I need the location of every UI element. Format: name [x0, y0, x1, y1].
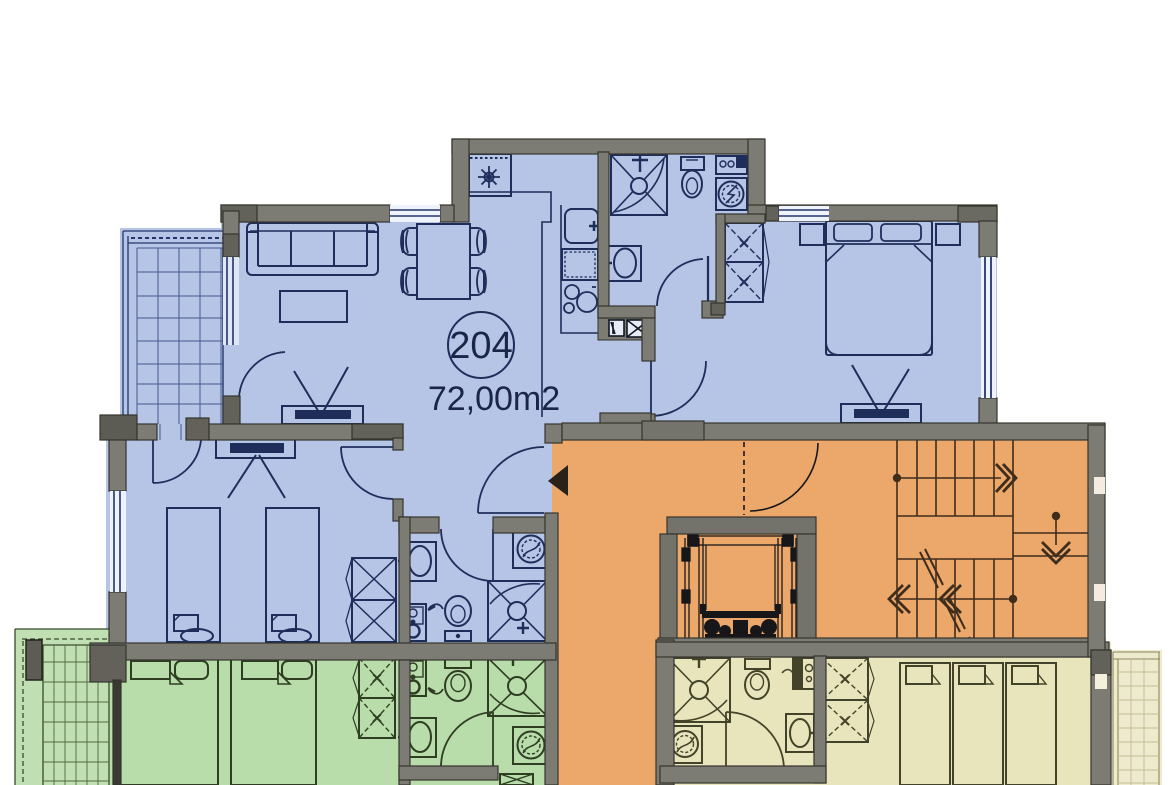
- svg-text:204: 204: [449, 325, 512, 367]
- svg-text:72,00m2: 72,00m2: [428, 380, 560, 418]
